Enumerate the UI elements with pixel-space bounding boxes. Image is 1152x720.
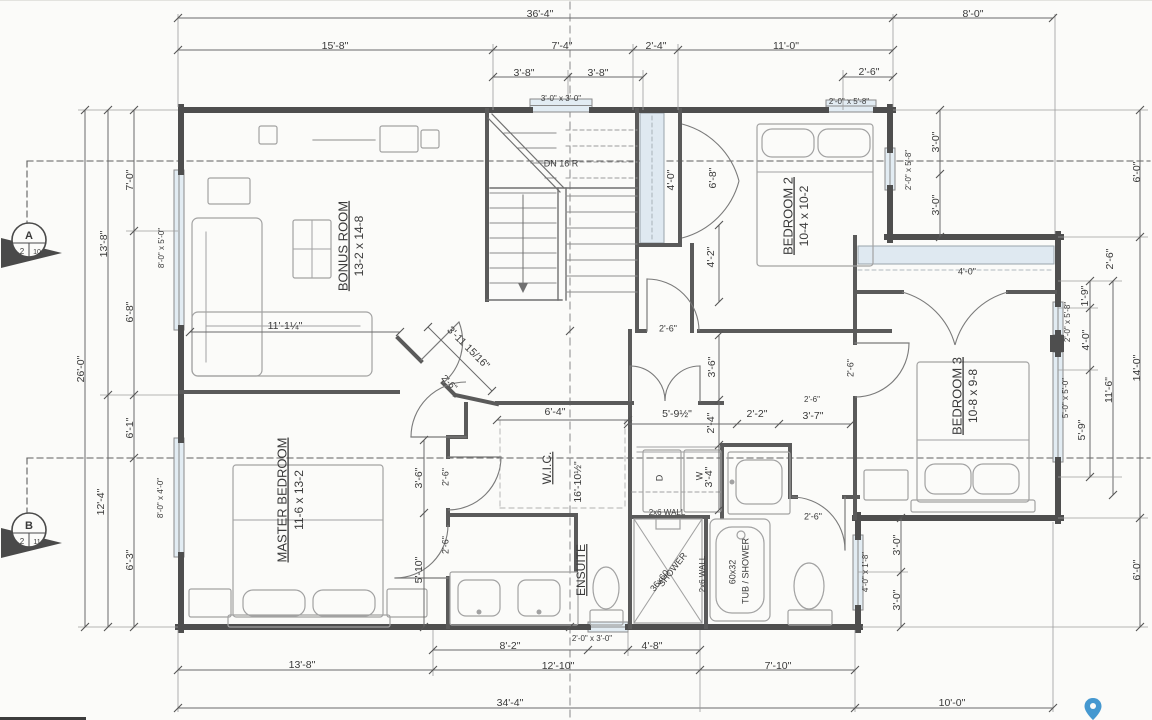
plan-label: 11'-1¼" xyxy=(268,320,303,332)
plan-label: 3'-6" xyxy=(706,356,718,377)
plan-label: 2'-6" xyxy=(1104,248,1116,269)
plan-label: 11'-6" xyxy=(1103,377,1115,403)
plan-label: BONUS ROOM xyxy=(335,201,350,291)
plan-label: 2'-6" xyxy=(804,395,820,404)
plan-label: 60x32 xyxy=(727,560,737,585)
plan-label: 5'-9" xyxy=(1076,419,1088,440)
section-a-sheet: 10 xyxy=(33,249,41,256)
plan-label: 3'-11 15/16" xyxy=(444,324,492,372)
plan-label: 7'-4" xyxy=(552,40,573,52)
plan-label: 12'-10" xyxy=(542,660,575,672)
plan-label: 6'-0" xyxy=(1131,559,1143,580)
plan-label: 16'-10½" xyxy=(572,461,584,503)
plan-label: 6'-4" xyxy=(545,406,566,418)
plan-label: 6'-0" xyxy=(1131,161,1143,182)
plan-label: 2'-6" xyxy=(440,373,460,393)
plan-label: 6'-8" xyxy=(124,301,136,322)
plan-label: 15'-8" xyxy=(322,40,349,52)
plan-label: W xyxy=(694,471,704,480)
plan-label: 2'-0" x 3'-0" xyxy=(572,634,612,643)
plan-label: DN 16 R xyxy=(544,158,579,168)
plan-label: 6'-1" xyxy=(124,417,136,438)
plan-label: 34'-4" xyxy=(497,697,524,709)
plan-label: 4'-8" xyxy=(642,640,663,652)
stairs-layer xyxy=(487,114,637,300)
floor-plan-svg: 36'-4"8'-0"15'-8"7'-4"2'-4"11'-0"3'-8"3'… xyxy=(0,0,1152,720)
dimension-lines-layer xyxy=(78,14,1148,712)
plan-label: ENSUITE xyxy=(574,544,588,596)
plan-label: 26'-0" xyxy=(75,355,87,382)
plan-label: 11'-0" xyxy=(773,40,799,52)
plan-label: 7'-0" xyxy=(124,169,136,190)
plan-label: 10-4 x 10-2 xyxy=(797,185,811,246)
walls-layer xyxy=(178,107,1061,630)
plan-label: 13'-8" xyxy=(289,659,316,671)
plan-label: 8'-0" x 5'-0" xyxy=(157,228,166,268)
plan-label: 7'-10" xyxy=(765,660,792,672)
plan-label: 11-6 x 13-2 xyxy=(292,470,306,530)
plan-label: 3'-0" xyxy=(891,534,903,555)
plan-label: 6'-8" xyxy=(707,167,719,188)
section-b-letter: B xyxy=(25,520,33,532)
plan-label: 5'-0" x 5'-0" xyxy=(1061,378,1070,418)
plan-label: 13'-8" xyxy=(98,230,110,257)
plan-label: 3'-0" x 3'-0" xyxy=(541,94,581,103)
plan-label: 3'-0" xyxy=(891,589,903,610)
plan-label: 3'-8" xyxy=(514,67,535,79)
plan-label: 6'-3" xyxy=(124,549,136,570)
plan-label: 2x6 WALL xyxy=(649,508,686,517)
plan-label: 5'-10" xyxy=(413,556,425,583)
plan-label: 4'-0" x 1'-8" xyxy=(861,552,870,592)
plan-label: 4'-0" xyxy=(1080,329,1092,350)
plan-label: 5'-9½" xyxy=(662,408,692,420)
plan-label: 2'-4" xyxy=(705,412,717,433)
plan-label: 2'-0" x 5'-8" xyxy=(829,97,869,106)
plan-label: 2'-0" x 5'-8" xyxy=(1063,302,1072,342)
plan-label: 13-2 x 14-8 xyxy=(352,215,366,276)
plan-label: 10-8 x 9-8 xyxy=(966,369,980,423)
plan-label: W.I.C. xyxy=(540,452,554,485)
plan-label: 2'-6" xyxy=(440,468,450,486)
floor-plan-page: 36'-4"8'-0"15'-8"7'-4"2'-4"11'-0"3'-8"3'… xyxy=(0,0,1152,720)
furniture-layer xyxy=(189,124,1035,627)
plan-label: 14'-0" xyxy=(1131,354,1143,381)
plan-label: 2'-6" xyxy=(440,536,450,554)
plan-label: 36'-4" xyxy=(527,8,554,20)
plan-label: 4'-0" xyxy=(665,169,677,190)
plan-label: 4'-0" xyxy=(958,266,976,276)
plan-label: 2'-6" xyxy=(804,511,822,521)
plan-label: 2'-0" x 5'-8" xyxy=(904,150,913,190)
plan-label: BEDROOM 3 xyxy=(949,357,964,435)
plan-label: TUB / SHOWER xyxy=(740,538,750,605)
plan-label: 2'-6" xyxy=(859,66,880,78)
plan-label: 8'-0" x 4'-0" xyxy=(156,478,165,518)
section-a-letter: A xyxy=(25,230,33,242)
plan-label: 2x6 WALL xyxy=(698,555,707,592)
plan-label: 2'-6" xyxy=(659,323,677,333)
plan-label: 2'-4" xyxy=(646,40,667,52)
plan-label: 3'-0" xyxy=(930,131,942,152)
plan-label: 2'-6" xyxy=(845,359,855,377)
section-b-sheet: 11 xyxy=(33,539,40,546)
section-a-num: 2 xyxy=(20,247,25,256)
plan-label: 1'-9" xyxy=(1079,285,1091,306)
plan-label: 3'-8" xyxy=(588,67,609,79)
plan-label: MASTER BEDROOM xyxy=(274,438,289,563)
plan-label: 12'-4" xyxy=(95,488,107,515)
map-pin-icon[interactable] xyxy=(1085,698,1102,720)
windows-layer xyxy=(174,99,1064,632)
section-b-num: 2 xyxy=(20,537,25,546)
plan-label: 4'-2" xyxy=(705,246,717,267)
plan-label: 3'-6" xyxy=(413,467,425,488)
plan-label: 3'-7" xyxy=(803,410,824,422)
plan-label: 8'-0" xyxy=(963,8,984,20)
plan-label: 3'-0" xyxy=(930,194,942,215)
plan-label: 3'-4" xyxy=(703,466,715,487)
plan-label: D xyxy=(654,474,664,481)
plan-label: 8'-2" xyxy=(500,640,521,652)
plan-label: 10'-0" xyxy=(939,697,966,709)
section-marker-a: A 2 10 xyxy=(1,223,62,268)
plan-label: BEDROOM 2 xyxy=(780,177,795,255)
plan-label: 2'-2" xyxy=(747,408,768,420)
section-marker-b: B 2 11 xyxy=(1,513,62,558)
